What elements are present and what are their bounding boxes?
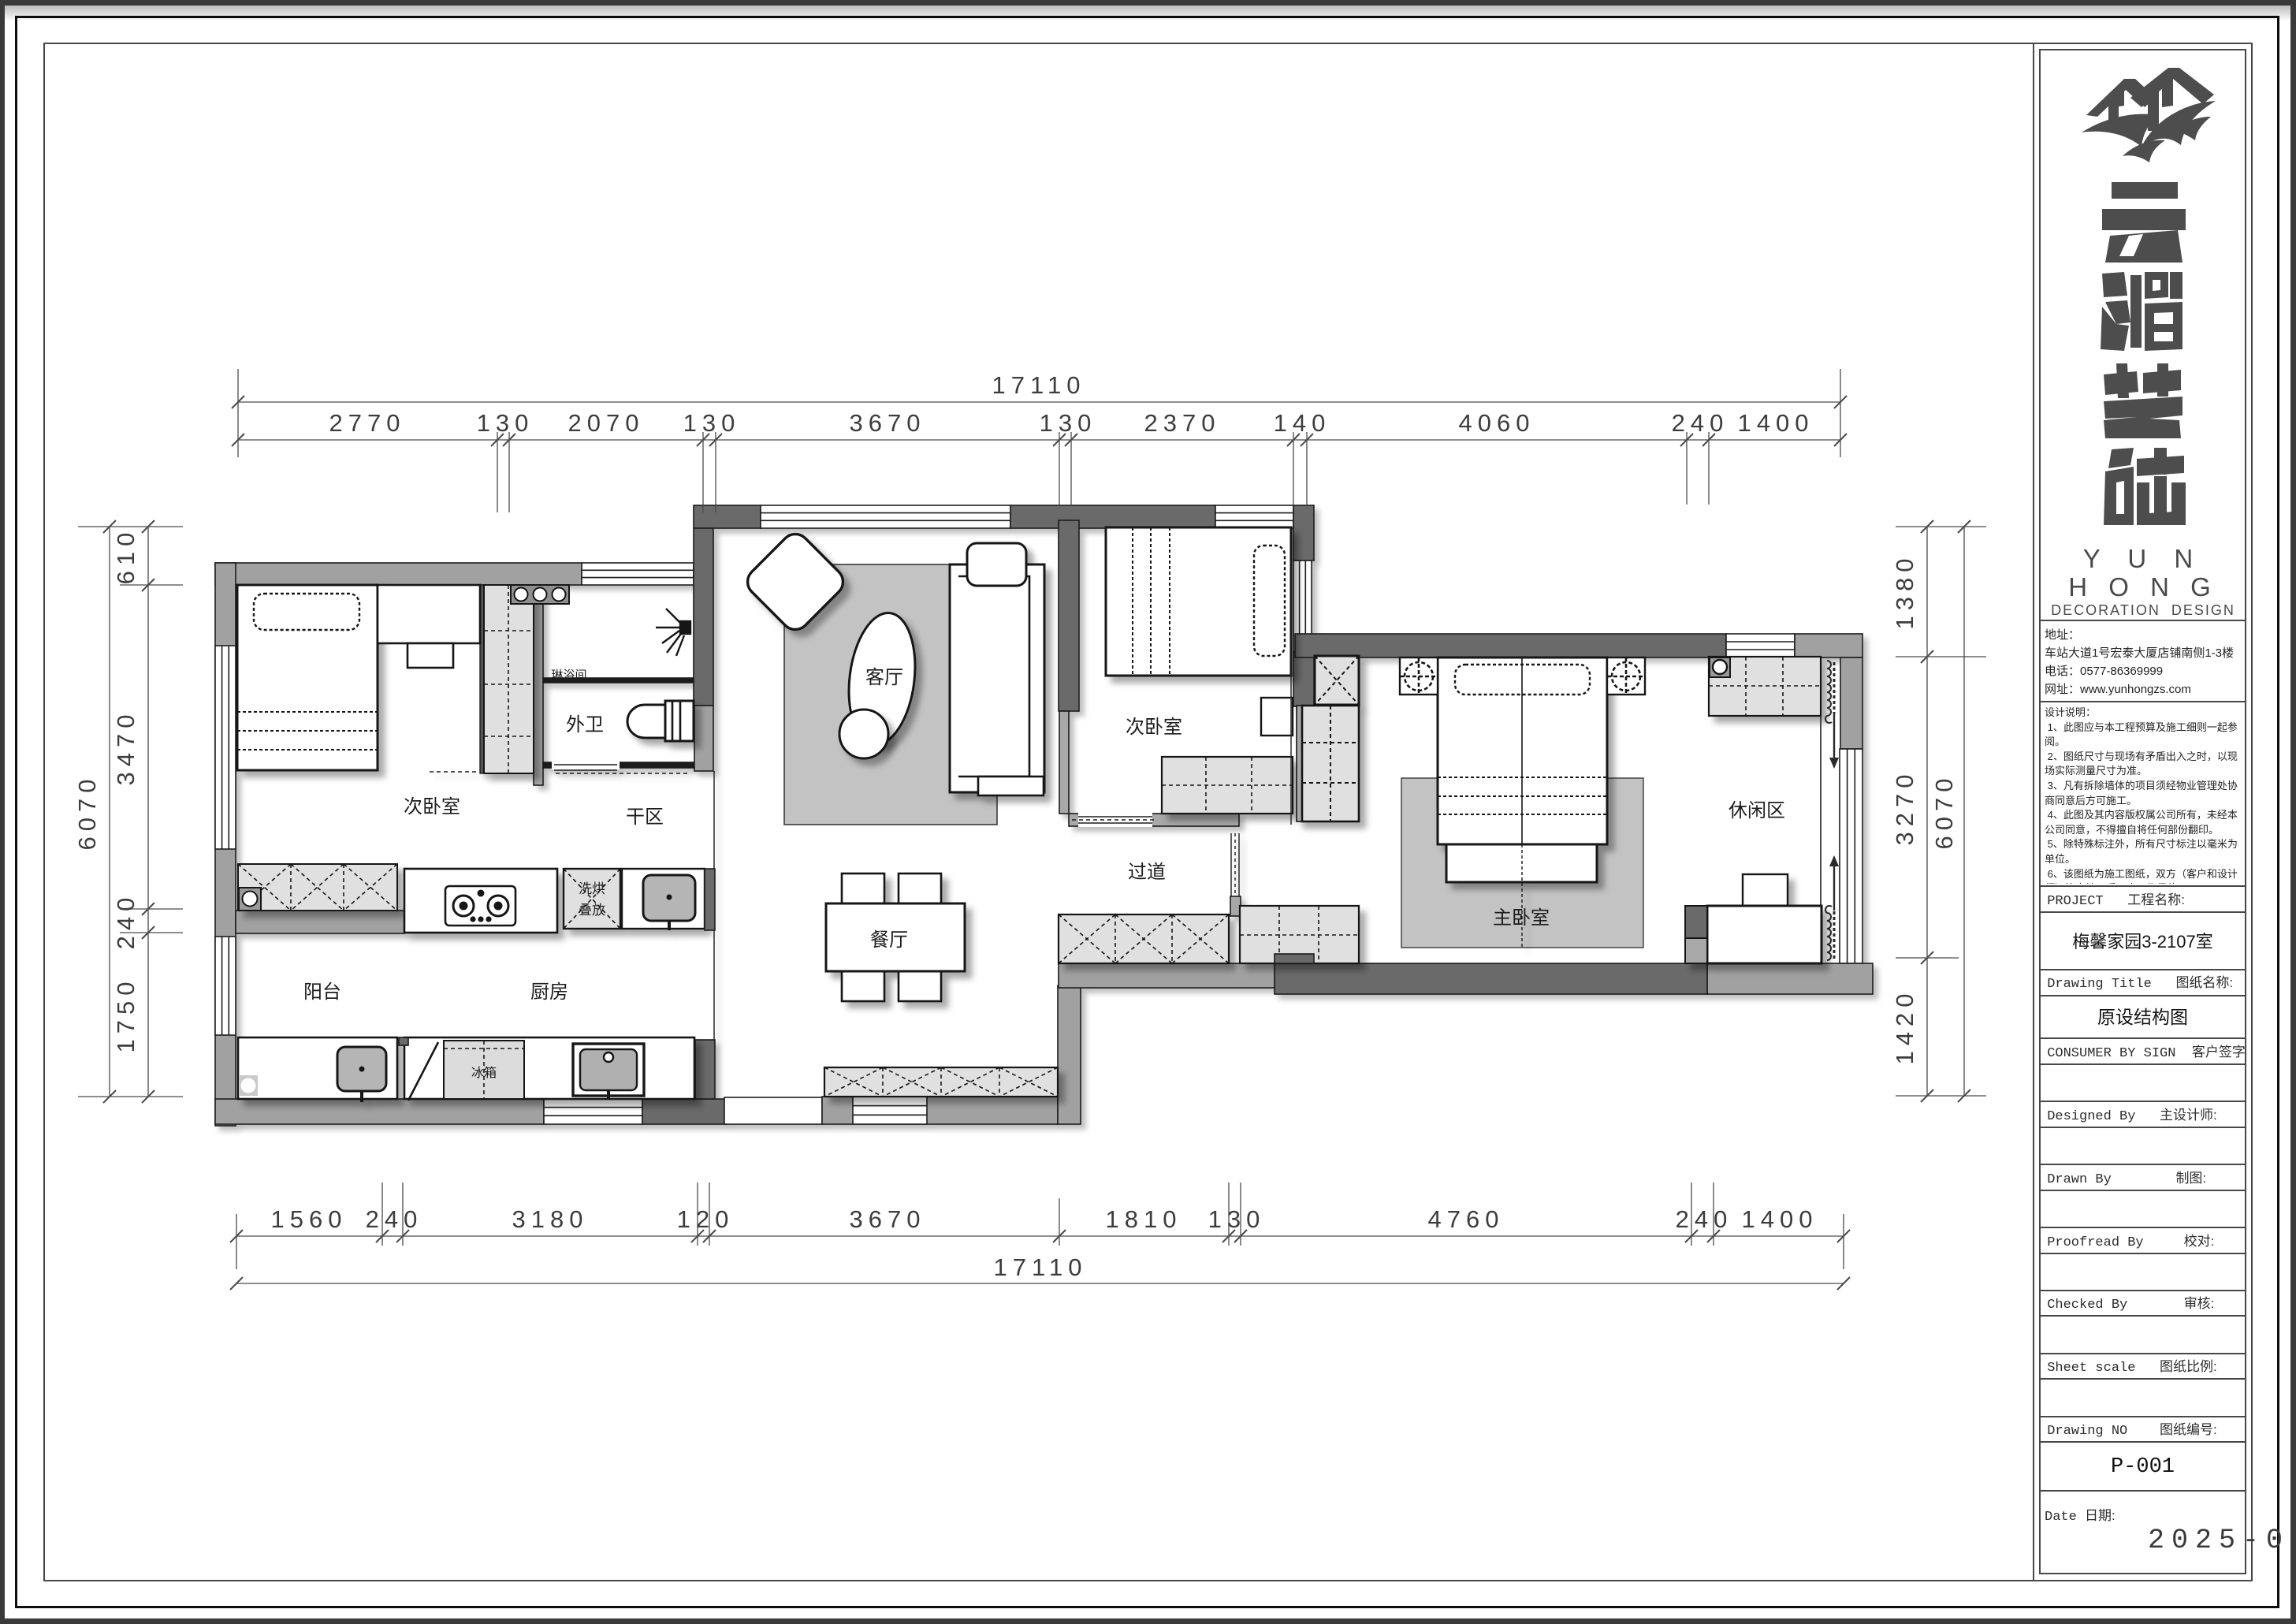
svg-text:1420: 1420 (1891, 989, 1918, 1065)
svg-text:240: 240 (1676, 1205, 1733, 1233)
svg-text:1400: 1400 (1742, 1205, 1818, 1233)
svg-text:17110: 17110 (994, 1253, 1088, 1281)
svg-text:1380: 1380 (1891, 553, 1918, 630)
svg-text:1810: 1810 (1106, 1205, 1182, 1233)
svg-text:干区: 干区 (626, 806, 664, 828)
svg-text:6070: 6070 (73, 774, 101, 851)
svg-text:厨房: 厨房 (530, 981, 568, 1003)
svg-text:2770: 2770 (329, 409, 406, 437)
svg-text:130: 130 (1208, 1205, 1266, 1233)
svg-text:240: 240 (112, 892, 140, 950)
svg-text:140: 140 (1274, 409, 1331, 437)
svg-text:2070: 2070 (568, 409, 645, 437)
svg-text:3470: 3470 (112, 710, 140, 786)
svg-text:休闲区: 休闲区 (1729, 800, 1785, 821)
svg-text:主卧室: 主卧室 (1493, 907, 1550, 929)
svg-text:130: 130 (1040, 409, 1097, 437)
svg-text:130: 130 (683, 409, 741, 437)
svg-text:叠放: 叠放 (579, 903, 605, 918)
svg-text:2370: 2370 (1144, 409, 1221, 437)
svg-text:3180: 3180 (512, 1205, 589, 1233)
svg-text:120: 120 (677, 1205, 735, 1233)
svg-text:1560: 1560 (271, 1205, 348, 1233)
svg-text:6070: 6070 (1930, 773, 1958, 850)
svg-text:冰箱: 冰箱 (471, 1066, 497, 1080)
svg-text:外卫: 外卫 (566, 714, 604, 736)
svg-text:客厅: 客厅 (865, 667, 903, 688)
svg-text:240: 240 (1672, 409, 1729, 437)
svg-text:3670: 3670 (850, 409, 926, 437)
svg-text:240: 240 (366, 1205, 423, 1233)
svg-text:洗烘: 洗烘 (579, 881, 605, 896)
svg-text:4760: 4760 (1428, 1205, 1505, 1233)
svg-text:餐厅: 餐厅 (870, 929, 908, 951)
svg-text:1400: 1400 (1738, 409, 1814, 437)
svg-text:130: 130 (477, 409, 534, 437)
svg-text:琳浴间: 琳浴间 (551, 669, 586, 682)
svg-text:次卧室: 次卧室 (1126, 717, 1182, 738)
svg-text:1750: 1750 (112, 977, 140, 1053)
svg-text:17110: 17110 (992, 371, 1086, 399)
svg-text:3270: 3270 (1891, 769, 1918, 846)
svg-text:次卧室: 次卧室 (404, 796, 460, 818)
svg-text:4060: 4060 (1459, 409, 1535, 437)
svg-text:3670: 3670 (850, 1205, 926, 1233)
svg-text:阳台: 阳台 (303, 981, 341, 1003)
svg-text:过道: 过道 (1128, 862, 1166, 883)
svg-text:610: 610 (112, 527, 140, 585)
